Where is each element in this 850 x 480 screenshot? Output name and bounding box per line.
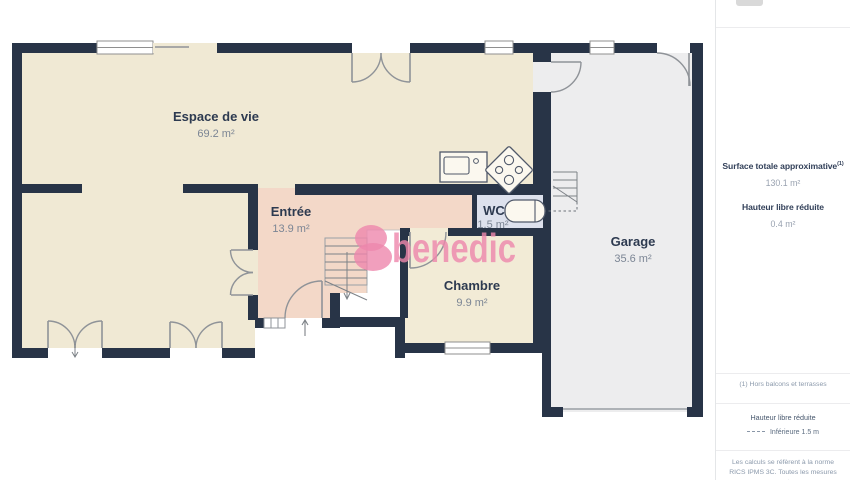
legend-row: Inférieure 1.5 m [716,429,850,436]
sidebar: Surface totale approximative(1) 130.1 m²… [715,0,850,480]
surface-total-title: Surface totale approximative(1) [716,161,850,171]
disclaimer-text: Les calculs se réfèrent à la norme RICS … [716,458,850,480]
screenshot: Espace de vie 69.2 m² Entrée 13.9 m² WC … [0,0,850,480]
legend-label: Inférieure 1.5 m [770,429,819,436]
area-garage: 35.6 m² [614,253,652,265]
sidebar-divider-2 [716,403,850,404]
sidebar-divider-1 [716,373,850,374]
footnote-balconies: (1) Hors balcons et terrasses [716,381,850,388]
room-living-lower [17,188,255,353]
surface-footnote-mark: (1) [837,161,843,167]
floor-plan: Espace de vie 69.2 m² Entrée 13.9 m² WC … [0,0,715,480]
reduced-height-title: Hauteur libre réduite [716,202,850,212]
reduced-height-value: 0.4 m² [716,219,850,229]
label-wc: WC [483,203,505,218]
surface-total-title-text: Surface totale approximative [722,161,837,171]
sidebar-divider-3 [716,450,850,451]
area-chambre: 9.9 m² [456,297,488,309]
watermark-text: benedic [392,225,516,271]
label-entree: Entrée [271,204,311,219]
wc-fixture [505,200,545,222]
legend-title: Hauteur libre réduite [716,413,850,422]
label-chambre: Chambre [444,278,500,293]
sidebar-logo-fragment [736,0,763,6]
area-espace-de-vie: 69.2 m² [197,128,235,140]
open-door-top [153,43,217,53]
watermark: benedic [354,225,516,271]
label-garage: Garage [611,234,656,249]
dashed-line-swatch [747,431,765,433]
surface-total-value: 130.1 m² [716,178,850,188]
sidebar-divider-top [716,27,850,28]
label-espace-de-vie: Espace de vie [173,109,259,124]
area-entree: 13.9 m² [272,223,310,235]
entry-steps [264,318,285,328]
room-garage [546,48,697,412]
